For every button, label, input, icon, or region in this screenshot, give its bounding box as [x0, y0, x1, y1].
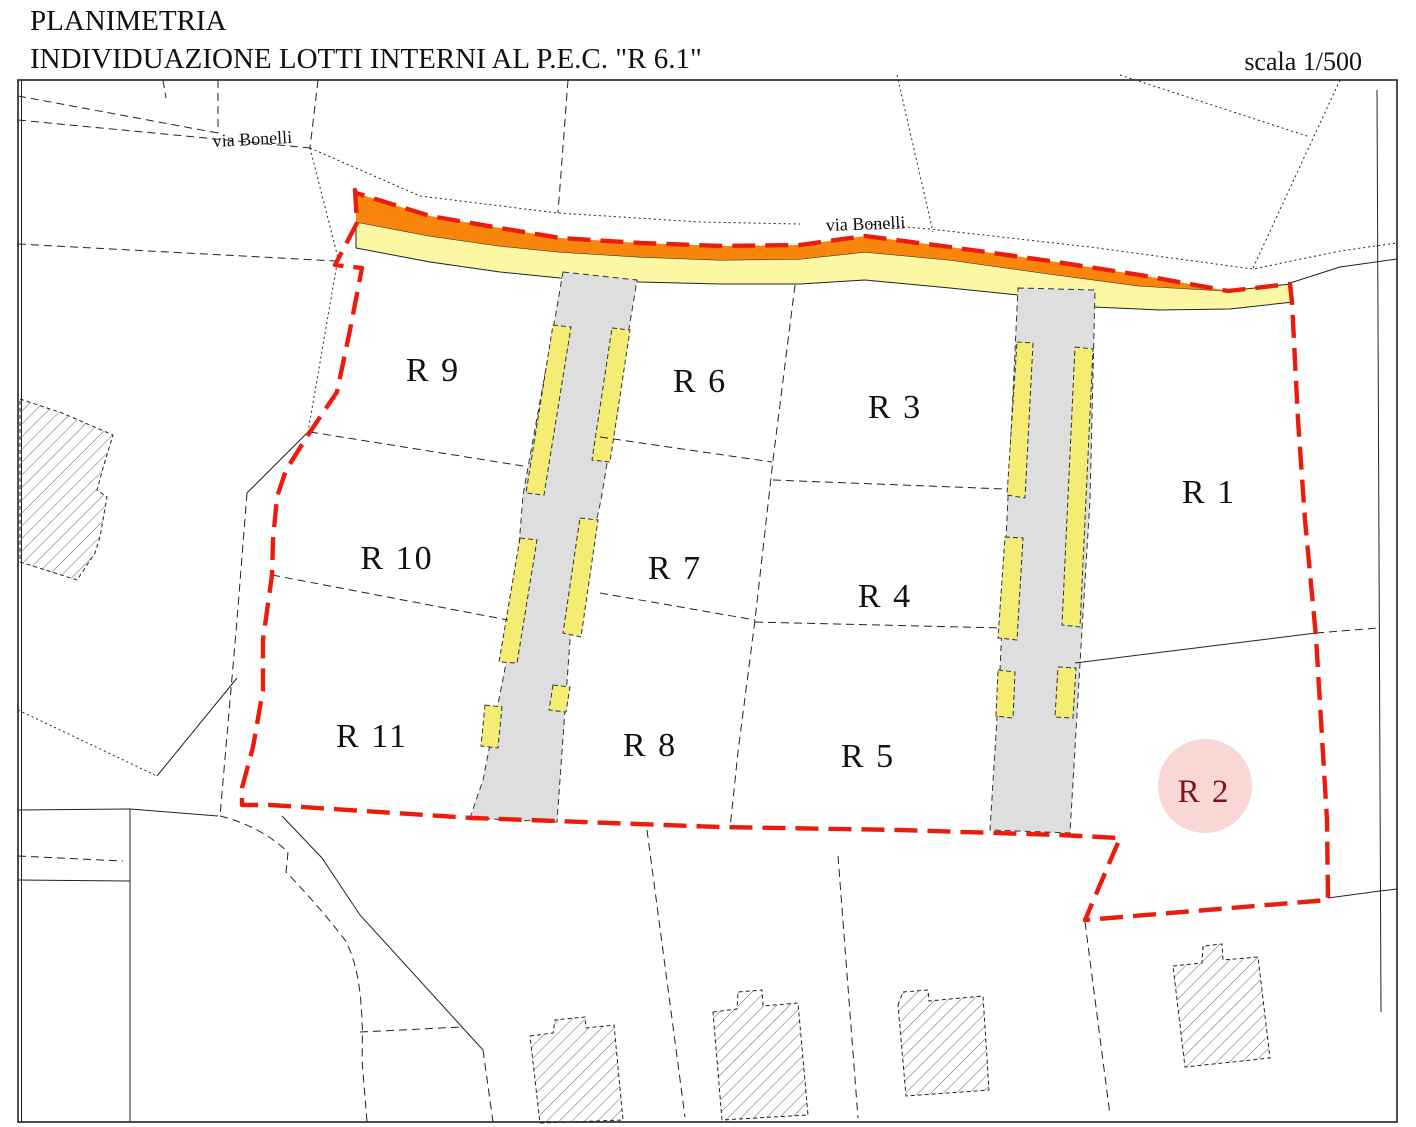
page-title-line2: INDIVIDUAZIONE LOTTI INTERNI AL P.E.C. "… — [30, 43, 702, 75]
site-plan-svg: PLANIMETRIA INDIVIDUAZIONE LOTTI INTERNI… — [0, 0, 1416, 1127]
lot-label-r9: R 9 — [406, 352, 460, 389]
lot-labels: R 1 R 2 R 3 R 4 R 5 R 6 R 7 R 8 R 9 R 10… — [336, 352, 1236, 810]
building-bottom-1 — [530, 1017, 623, 1123]
lot-label-r2: R 2 — [1178, 774, 1231, 810]
scale-label: scala 1/500 — [1244, 47, 1362, 76]
street-labels: via Bonelli via Bonelli — [212, 127, 905, 235]
lot-label-r7: R 7 — [648, 550, 702, 587]
page-title-line1: PLANIMETRIA — [30, 5, 227, 37]
lot-label-r6: R 6 — [673, 363, 727, 400]
building-bottom-2 — [713, 990, 808, 1120]
planimetria-drawing: PLANIMETRIA INDIVIDUAZIONE LOTTI INTERNI… — [0, 0, 1416, 1127]
street-label-via-bonelli-2: via Bonelli — [825, 212, 905, 235]
building-bottom-3 — [898, 990, 989, 1096]
lot-label-r3: R 3 — [868, 389, 922, 426]
lot-label-r8: R 8 — [623, 727, 677, 764]
building-left — [20, 399, 113, 580]
parcel-lines-top — [18, 75, 1397, 1012]
lot-label-r11: R 11 — [336, 718, 408, 755]
road-widening-strips — [356, 193, 1293, 310]
building-bottom-right — [1173, 944, 1270, 1067]
lot-label-r1: R 1 — [1182, 474, 1236, 511]
lot-label-r4: R 4 — [858, 578, 912, 615]
lot-label-r10: R 10 — [360, 540, 433, 577]
lot-label-r5: R 5 — [841, 738, 895, 775]
drawing-header: PLANIMETRIA INDIVIDUAZIONE LOTTI INTERNI… — [30, 5, 1362, 76]
street-label-via-bonelli-1: via Bonelli — [212, 127, 292, 151]
